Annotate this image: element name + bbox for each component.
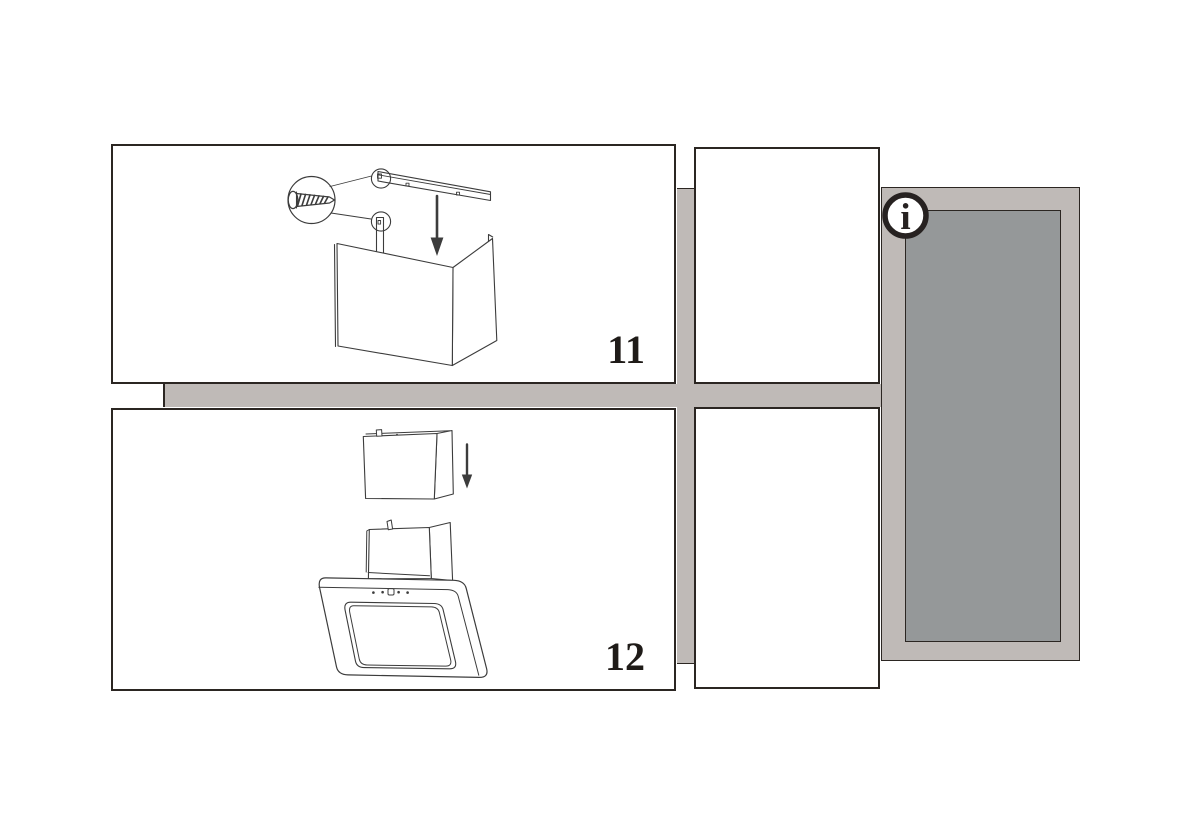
manual-page: 11 12 <box>0 0 1190 840</box>
step-number-11: 11 <box>563 330 645 370</box>
side-panel-bottom <box>694 407 880 689</box>
side-panel-top <box>694 147 880 384</box>
info-inner-area <box>905 210 1061 642</box>
connector-bar <box>163 384 883 407</box>
connector-strip <box>677 188 694 664</box>
info-panel <box>881 187 1080 661</box>
step-number-12: 12 <box>563 637 645 677</box>
